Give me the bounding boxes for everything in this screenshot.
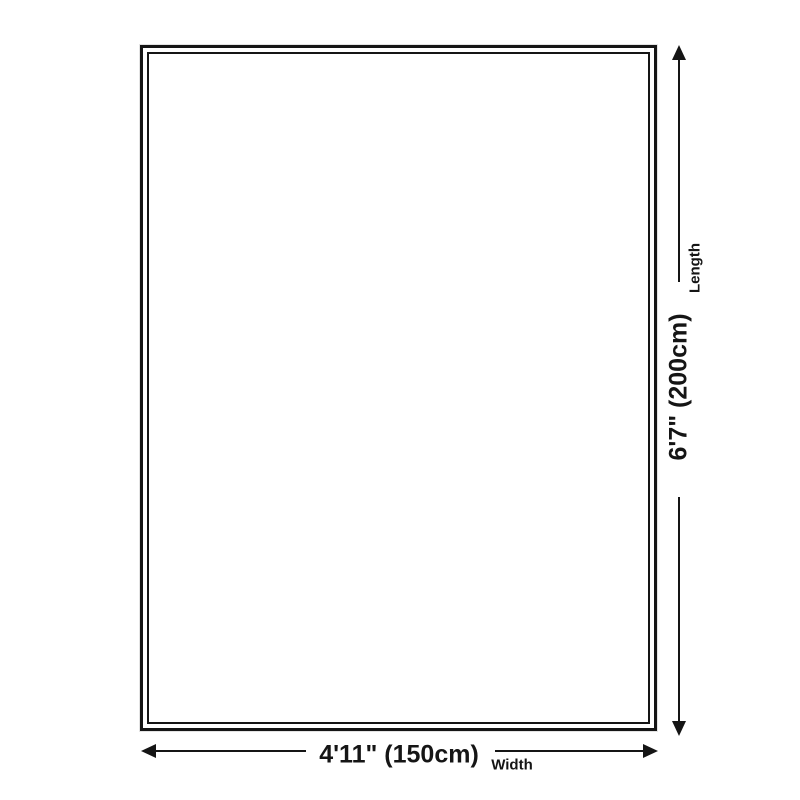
width-label: Width (491, 758, 533, 773)
rug-inner-border (147, 52, 650, 724)
width-value: 4'11" (150cm) (319, 743, 479, 768)
length-dimension-line-top (678, 58, 680, 282)
size-diagram-canvas: Length 6'7" (200cm) 4'11" (150cm) Width (0, 0, 800, 800)
length-label: Length (688, 243, 703, 293)
width-dimension-line-right (495, 750, 644, 752)
length-dimension-line-bottom (678, 497, 680, 722)
length-value: 6'7" (200cm) (667, 313, 692, 460)
arrow-left-icon (141, 744, 156, 758)
arrow-right-icon (643, 744, 658, 758)
width-dimension-line-left (155, 750, 306, 752)
arrow-down-icon (672, 721, 686, 736)
rug-rectangle (140, 45, 657, 731)
